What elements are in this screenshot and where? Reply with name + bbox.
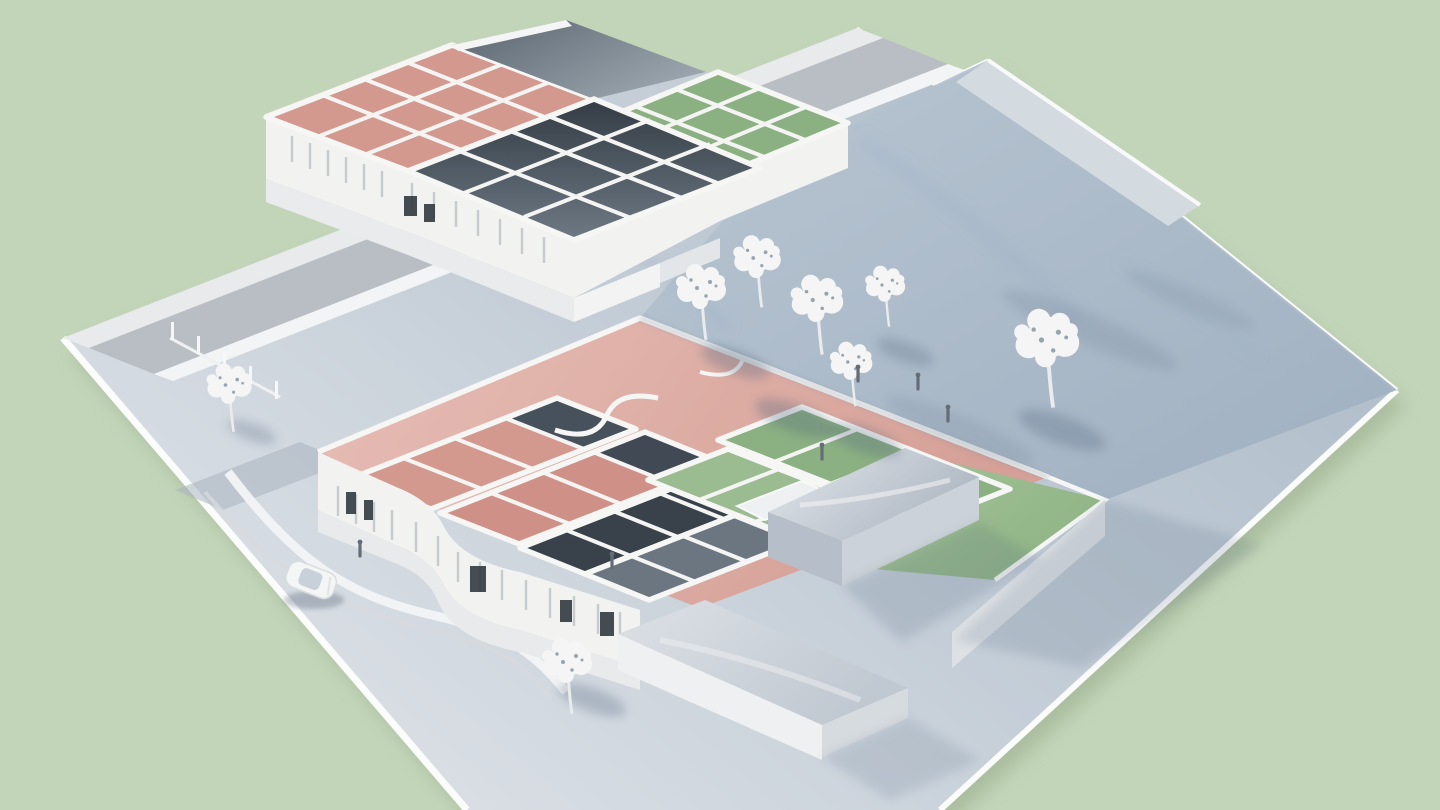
architectural-model-scene: Architectural massing model with cutaway… <box>0 0 1440 810</box>
model-photo-stage: Architectural massing model with cutaway… <box>0 0 1440 810</box>
window-slit <box>424 204 435 222</box>
window-slit <box>364 500 373 520</box>
window-slit <box>560 600 572 622</box>
window-slit <box>600 612 614 636</box>
window-slit <box>346 492 356 514</box>
window-slit <box>404 196 417 216</box>
entrance-opening <box>470 566 486 592</box>
